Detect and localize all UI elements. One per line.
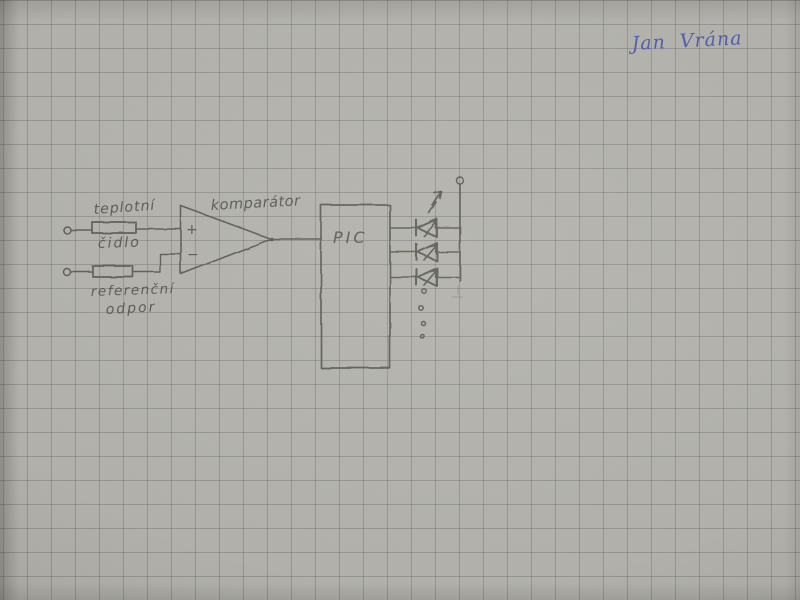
ellipsis-dots [419, 289, 426, 338]
ellipsis-dot [422, 289, 426, 293]
label-comparator: komparátor [210, 193, 301, 214]
faint-pencil-marks [452, 286, 462, 297]
supply-terminal [457, 177, 464, 184]
input-terminal-bottom [64, 269, 71, 276]
ellipsis-dot [420, 334, 424, 338]
signature: Jan Vrána [627, 27, 743, 55]
label-sensor-line1: teplotní [93, 198, 157, 218]
led-3 [417, 268, 461, 286]
schematic-drawing: teplotní čidlo referenční odpor komparát… [0, 0, 800, 600]
label-reference-line2: odpor [105, 299, 156, 318]
ellipsis-dot [421, 321, 425, 325]
resistor-reference [93, 266, 133, 277]
comparator-triangle [181, 206, 271, 274]
input-terminal-top [64, 227, 71, 234]
label-sensor-line2: čidlo [98, 235, 141, 252]
label-reference-line1: referenční [91, 281, 176, 300]
comparator-minus-input: − [187, 247, 199, 263]
graph-paper-photo: teplotní čidlo referenční odpor komparát… [0, 0, 800, 600]
resistor-temperature-sensor [92, 222, 136, 233]
led-1 [417, 219, 461, 237]
emission-arrow-icon [429, 191, 441, 213]
ellipsis-dot [419, 306, 423, 310]
comparator-plus-input: + [186, 222, 198, 238]
label-pic: PIC [333, 228, 368, 247]
led-2 [417, 243, 461, 261]
wire-reference-to-comparator [133, 254, 181, 272]
